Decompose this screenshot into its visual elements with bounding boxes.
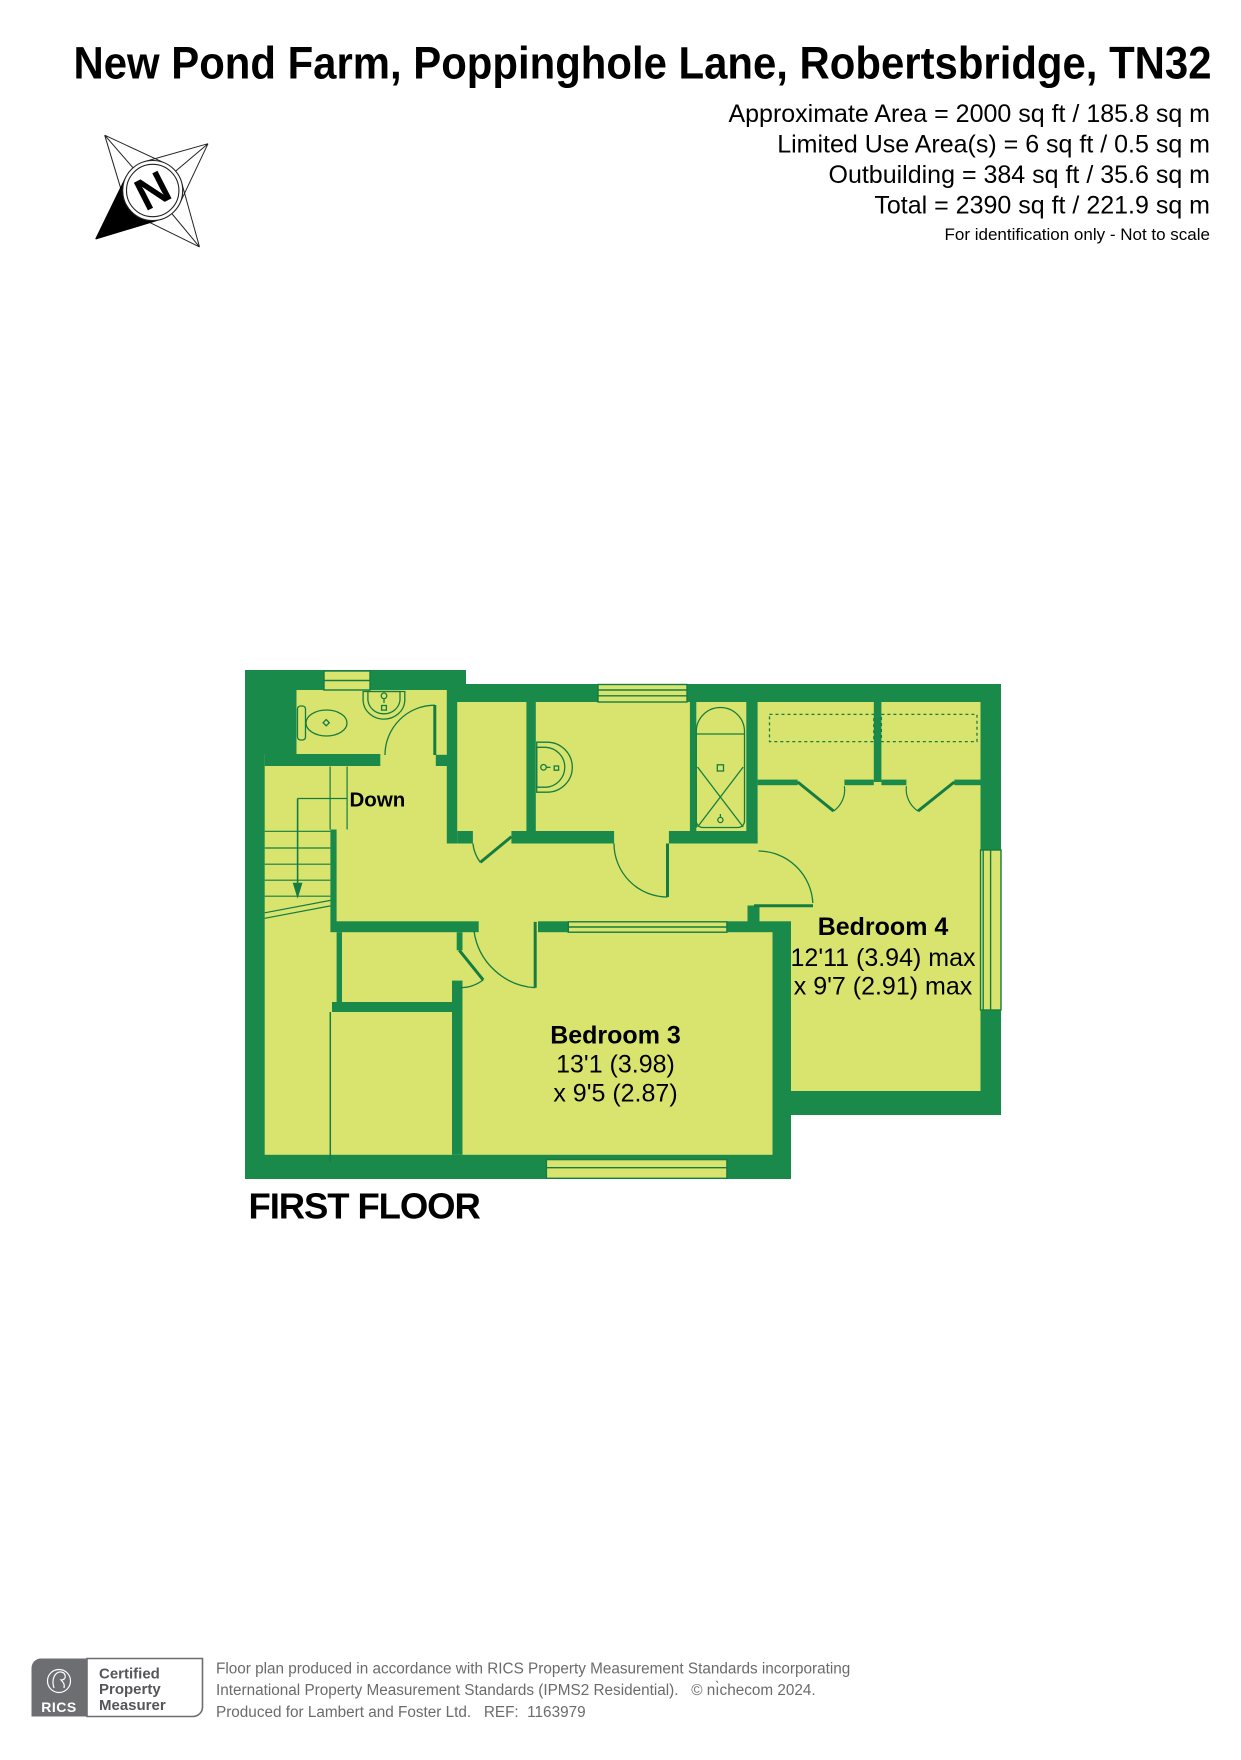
svg-text:Bedroom 4: Bedroom 4 [818, 913, 949, 941]
svg-text:Floor plan produced in accorda: Floor plan produced in accordance with R… [216, 1661, 850, 1678]
svg-text:Produced for Lambert and Foste: Produced for Lambert and Foster Ltd. REF… [216, 1704, 586, 1721]
svg-text:FIRST FLOOR: FIRST FLOOR [249, 1186, 481, 1227]
svg-text:x 9'5 (2.87): x 9'5 (2.87) [553, 1080, 677, 1108]
svg-text:RICS: RICS [41, 1699, 76, 1715]
svg-text:Measurer: Measurer [99, 1697, 166, 1714]
svg-text:x 9'7 (2.91) max: x 9'7 (2.91) max [794, 973, 973, 1001]
svg-text:New Pond Farm, Poppinghole Lan: New Pond Farm, Poppinghole Lane, Roberts… [74, 38, 1212, 89]
svg-text:Approximate Area = 2000 sq ft: Approximate Area = 2000 sq ft / 185.8 sq… [728, 100, 1210, 128]
svg-text:International Property Measure: International Property Measurement Stand… [216, 1682, 816, 1699]
svg-text:For identification only - Not: For identification only - Not to scale [944, 225, 1210, 244]
svg-text:Outbuilding = 384 sq ft / 35.6: Outbuilding = 384 sq ft / 35.6 sq m [829, 161, 1210, 189]
svg-text:Limited Use Area(s) = 6 sq ft: Limited Use Area(s) = 6 sq ft / 0.5 sq m [777, 131, 1210, 159]
svg-text:12'11 (3.94) max: 12'11 (3.94) max [791, 944, 976, 972]
svg-text:Total = 2390 sq ft / 221.9 sq: Total = 2390 sq ft / 221.9 sq m [874, 192, 1210, 220]
svg-text:Down: Down [350, 789, 406, 812]
svg-text:Property: Property [99, 1681, 161, 1698]
svg-text:13'1 (3.98): 13'1 (3.98) [556, 1051, 675, 1079]
svg-text:Certified: Certified [99, 1666, 160, 1683]
svg-text:Bedroom 3: Bedroom 3 [550, 1022, 681, 1050]
